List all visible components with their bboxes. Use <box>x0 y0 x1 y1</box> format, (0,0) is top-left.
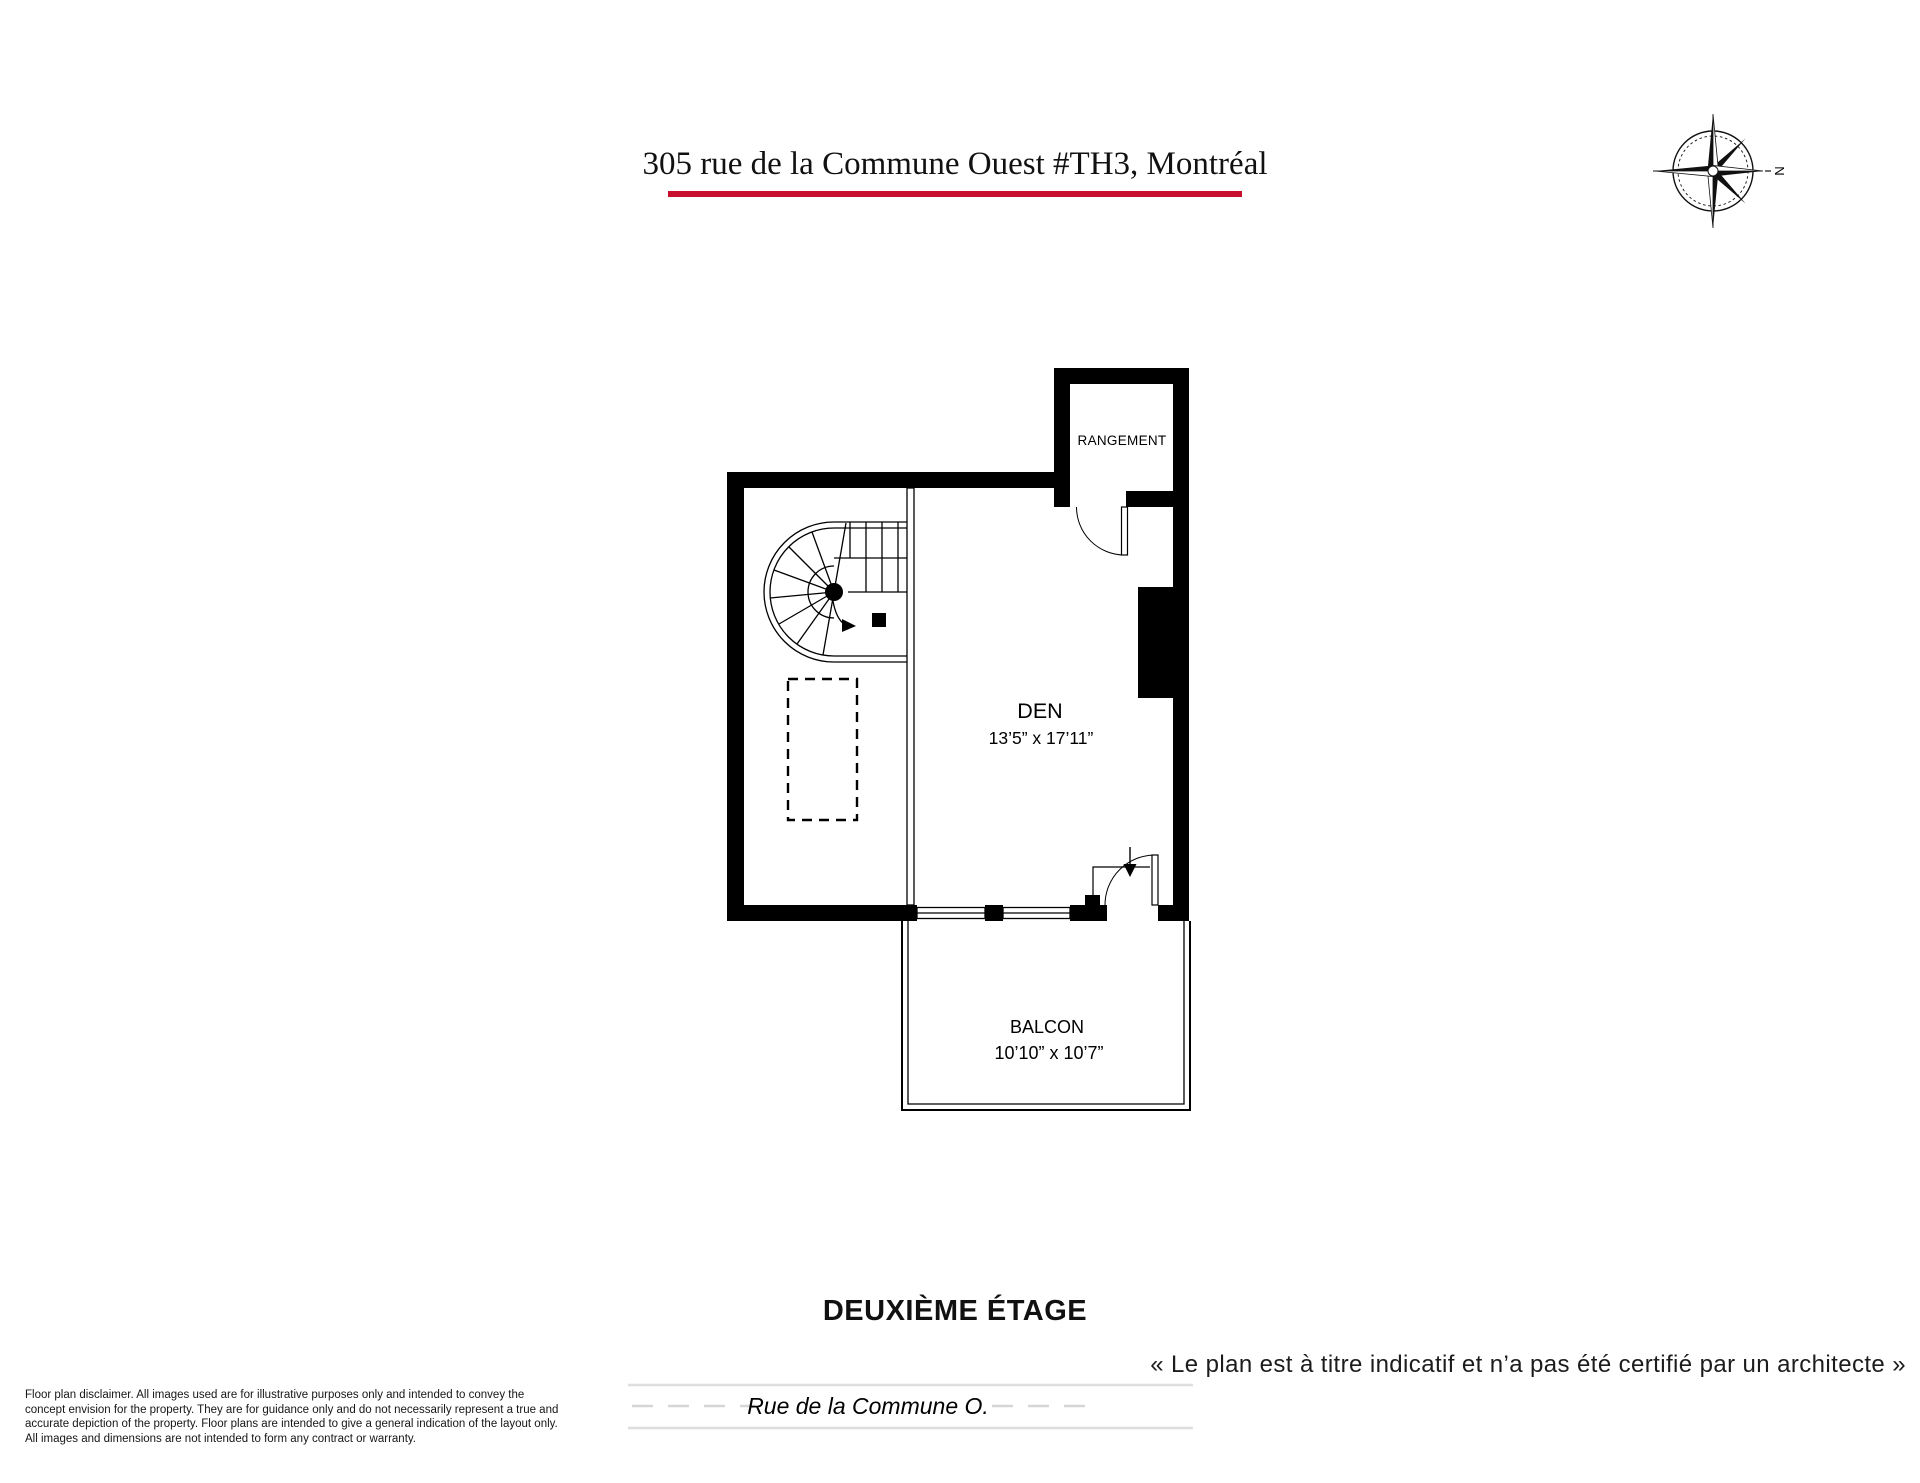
room-label-rangement: RANGEMENT <box>1078 433 1167 448</box>
floor-label: DEUXIÈME ÉTAGE <box>0 1295 1910 1328</box>
spiral-staircase <box>764 522 907 662</box>
door-leaf <box>1122 507 1128 555</box>
door-frame <box>1093 867 1150 897</box>
column-post <box>872 613 886 627</box>
disclaimer-line: All images and dimensions are not intend… <box>25 1432 585 1447</box>
rangement-door <box>1077 507 1128 555</box>
room-label-balcon: BALCON <box>1010 1017 1084 1037</box>
street-label: Rue de la Commune O. <box>747 1393 989 1419</box>
street-graphic: Rue de la Commune O. <box>620 1375 1210 1435</box>
balcony-door <box>1093 847 1158 905</box>
room-dims-balcon: 10’10” x 10’7” <box>994 1043 1103 1063</box>
chimney-block <box>1138 587 1173 698</box>
architect-note: « Le plan est à titre indicatif et n’a p… <box>1150 1351 1906 1379</box>
disclaimer-line: Floor plan disclaimer. All images used a… <box>25 1388 585 1403</box>
door-swing-arc <box>1077 507 1125 555</box>
room-label-den: DEN <box>1017 699 1062 723</box>
floorplan-page: 305 rue de la Commune Ouest #TH3, Montré… <box>0 0 1920 1483</box>
balcony-railing <box>902 921 1190 1110</box>
disclaimer: Floor plan disclaimer. All images used a… <box>25 1388 585 1446</box>
disclaimer-line: concept envision for the property. They … <box>25 1403 585 1418</box>
title-underline <box>668 191 1242 197</box>
stair-center-pole <box>825 583 843 601</box>
floorplan-drawing: RANGEMENT DEN 13’5” x 17’11” BALCON 10’1… <box>700 350 1210 1130</box>
door-leaf <box>1152 855 1158 905</box>
dashed-opening <box>788 679 857 820</box>
stair-divider-wall <box>907 488 914 905</box>
disclaimer-line: accurate depiction of the property. Floo… <box>25 1417 585 1432</box>
compass-rose-icon: N <box>1640 100 1810 245</box>
page-title: 305 rue de la Commune Ouest #TH3, Montré… <box>0 146 1910 183</box>
room-dims-den: 13’5” x 17’11” <box>989 728 1094 748</box>
compass-north-label: N <box>1772 166 1787 175</box>
